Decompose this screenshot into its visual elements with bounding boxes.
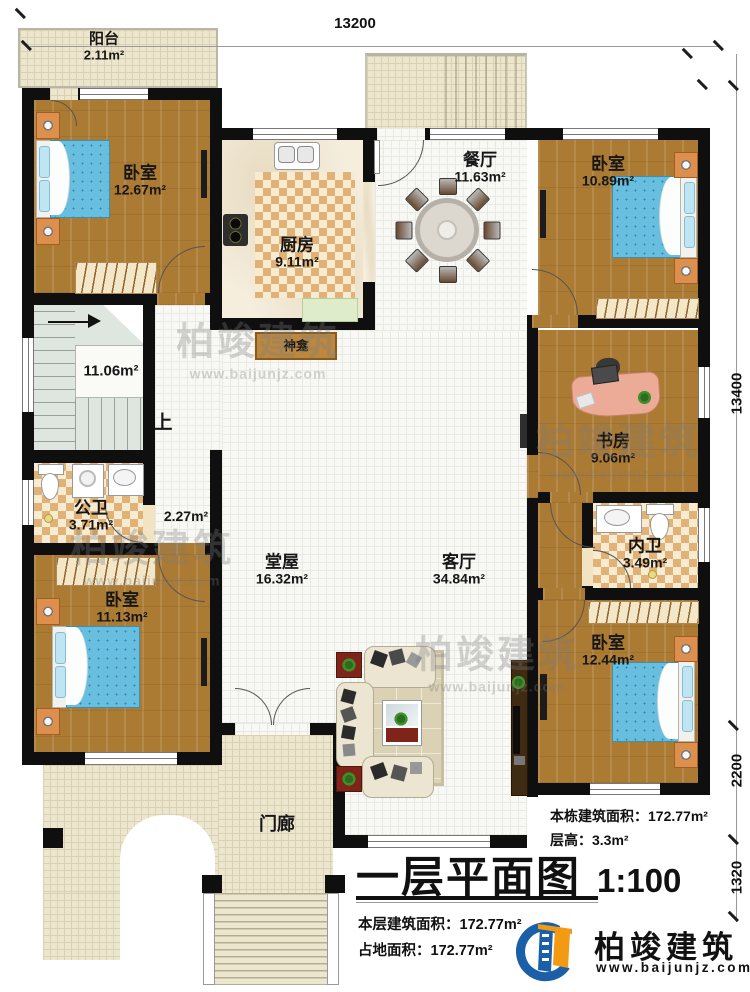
room-label-public-bath: 公卫 3.71m² xyxy=(69,499,113,534)
stair-direction-arrow xyxy=(88,314,101,328)
window xyxy=(22,480,34,525)
tv-symbol xyxy=(513,706,520,754)
steps-side-rail xyxy=(327,893,339,985)
window xyxy=(430,128,505,140)
shrine-label: 神龛 xyxy=(283,339,308,353)
door-opening xyxy=(157,293,205,305)
stair-direction-line xyxy=(48,321,90,323)
room-name: 厨房 xyxy=(275,236,319,255)
company-logo: 柏竣建筑 www.baijunjz.com xyxy=(506,918,744,986)
wardrobe xyxy=(75,262,157,294)
room-label-bedroom-nw: 卧室 12.67m² xyxy=(114,164,166,199)
dimension-tick xyxy=(697,79,708,90)
wall-segment xyxy=(527,318,538,797)
door-opening xyxy=(582,548,593,586)
dimension-label-right-upper: 13400 xyxy=(729,364,746,424)
room-label-study: 书房 9.06m² xyxy=(591,432,635,467)
door-opening xyxy=(532,315,578,328)
kitchen-opening xyxy=(363,182,375,282)
plant xyxy=(392,710,410,728)
room-label-porch: 门廊 xyxy=(259,814,295,834)
room-area: 12.44m² xyxy=(582,653,634,669)
wall-segment xyxy=(363,282,375,330)
wardrobe xyxy=(588,601,699,624)
dining-chair xyxy=(396,222,413,240)
nightstand xyxy=(674,742,698,768)
room-area: 11.13m² xyxy=(96,610,147,626)
nightstand xyxy=(36,112,60,139)
porch-column xyxy=(43,828,63,848)
window xyxy=(22,338,34,412)
logo-website: www.baijunjz.com xyxy=(596,960,750,975)
room-name: 门廊 xyxy=(259,814,295,834)
bed-sheet xyxy=(657,663,678,739)
tv-symbol xyxy=(540,674,547,720)
room-area: 9.11m² xyxy=(275,255,319,271)
drawing-scale: 1:100 xyxy=(597,862,681,900)
porch-arch-cutout xyxy=(120,815,215,960)
cabinet-item xyxy=(514,756,525,765)
wall-segment xyxy=(698,128,710,795)
stair-up-label: 上 xyxy=(153,412,172,433)
room-name: 神龛 xyxy=(283,339,308,353)
washer-door xyxy=(79,470,96,487)
room-name: 卧室 xyxy=(96,591,147,610)
wall-segment xyxy=(210,450,222,765)
dimension-tick xyxy=(728,720,739,731)
porch-floor xyxy=(43,893,120,960)
corridor-area-label: 2.27m² xyxy=(164,509,208,525)
room-name: 阳台 xyxy=(84,31,124,48)
room-label-living: 客厅 34.84m² xyxy=(433,553,485,588)
computer-monitor xyxy=(591,364,619,384)
room-area: 34.84m² xyxy=(433,572,485,588)
tv-symbol xyxy=(520,414,527,448)
room-label-kitchen: 厨房 9.11m² xyxy=(275,236,319,271)
window xyxy=(253,128,337,140)
bed-pillow xyxy=(39,180,50,212)
room-label-bedroom-se: 卧室 12.44m² xyxy=(582,634,634,669)
bed-pillow xyxy=(684,216,695,248)
room-name: 客厅 xyxy=(433,553,485,572)
land-area-stat: 占地面积：172.77m² xyxy=(358,939,493,960)
room-area: 3.49m² xyxy=(623,556,667,572)
window xyxy=(698,367,710,418)
entry-steps xyxy=(215,893,327,985)
bed-pillow xyxy=(55,632,66,664)
porch-column xyxy=(325,875,345,893)
room-name: 公卫 xyxy=(69,499,113,518)
wall-segment xyxy=(22,450,155,463)
room-name: 卧室 xyxy=(582,634,634,653)
door-opening xyxy=(543,588,585,600)
top-dimension-line xyxy=(30,46,720,47)
terrace-shade-stripes xyxy=(445,56,525,128)
stove xyxy=(223,214,248,246)
sofa-pillow xyxy=(410,762,422,774)
dimension-tick xyxy=(682,48,693,59)
room-area: 11.63m² xyxy=(454,170,505,186)
bed-pillow xyxy=(682,700,693,732)
dining-chair xyxy=(439,266,457,283)
tv-symbol xyxy=(201,638,207,686)
window xyxy=(80,88,148,100)
room-label-inner-bath: 内卫 3.49m² xyxy=(623,537,667,572)
window xyxy=(563,128,658,140)
door-opening xyxy=(527,455,538,498)
window xyxy=(590,783,660,795)
nightstand xyxy=(36,708,60,735)
room-label-balcony: 阳台 2.11m² xyxy=(84,31,124,62)
coffee-table-tray xyxy=(386,728,418,742)
dining-set xyxy=(395,178,499,282)
floor-area-stat: 本层建筑面积：172.77m² xyxy=(358,913,522,934)
title-underline xyxy=(356,896,598,900)
window xyxy=(85,752,177,765)
room-name: 卧室 xyxy=(114,164,166,183)
sink-basin xyxy=(113,469,136,486)
steps-side-rail xyxy=(203,893,215,985)
dimension-tick xyxy=(15,8,26,19)
bed-pillow xyxy=(682,666,693,698)
room-area: 2.11m² xyxy=(84,48,124,63)
room-name: 书房 xyxy=(591,432,635,451)
plant xyxy=(512,676,525,689)
room-area: 2.27m² xyxy=(164,509,208,525)
sink-basin xyxy=(278,146,295,163)
wardrobe xyxy=(596,298,699,319)
dimension-tick xyxy=(728,80,739,91)
up-text: 上 xyxy=(153,412,172,433)
bed-pillow xyxy=(684,182,695,214)
floor-drain xyxy=(44,514,53,523)
room-area: 12.67m² xyxy=(114,183,166,199)
title-underline-thin xyxy=(356,902,598,903)
kitchen-mat xyxy=(302,298,358,322)
room-name: 餐厅 xyxy=(454,151,505,170)
dimension-label-right-lower: 1320 xyxy=(729,848,746,908)
sofa-pillow xyxy=(342,743,355,756)
room-name: 卧室 xyxy=(582,155,634,174)
nightstand xyxy=(36,218,60,245)
side-table-plant xyxy=(336,766,362,792)
door-opening xyxy=(143,505,155,543)
sink-basin xyxy=(604,509,630,526)
bed-sheet xyxy=(659,177,680,255)
stair-flight-horizontal xyxy=(75,398,148,450)
tv-symbol xyxy=(201,150,207,198)
side-table-plant xyxy=(336,652,362,678)
door-opening xyxy=(377,128,425,140)
nightstand xyxy=(674,152,698,178)
room-label-dining: 餐厅 11.63m² xyxy=(454,151,505,186)
room-name: 堂屋 xyxy=(256,553,308,572)
sink-basin xyxy=(297,146,314,163)
room-label-hall: 堂屋 16.32m² xyxy=(256,553,308,588)
room-area: 9.06m² xyxy=(591,451,635,467)
dimension-label-right-middle: 2200 xyxy=(729,741,746,801)
room-area: 16.32m² xyxy=(256,572,308,588)
dining-table-center xyxy=(437,220,457,240)
nightstand xyxy=(674,258,698,284)
logo-mark-icon xyxy=(506,918,592,984)
room-area: 3.71m² xyxy=(69,518,113,534)
room-label-bedroom-sw: 卧室 11.13m² xyxy=(96,591,147,626)
door-opening xyxy=(158,543,205,555)
bed-pillow xyxy=(39,146,50,178)
room-area: 10.89m² xyxy=(582,174,634,190)
door-opening xyxy=(50,88,78,100)
nightstand xyxy=(674,636,698,662)
room-label-bedroom-ne: 卧室 10.89m² xyxy=(582,155,634,190)
stairwell-area-label: 11.06m² xyxy=(83,364,138,381)
bed-pillow xyxy=(55,666,66,698)
dimension-tick xyxy=(728,834,739,845)
plant xyxy=(637,390,652,405)
room-area: 11.06m² xyxy=(83,364,138,381)
dining-chair xyxy=(484,222,501,240)
dimension-label-top: 13200 xyxy=(310,15,400,32)
nightstand xyxy=(36,598,60,625)
tv-symbol xyxy=(540,190,546,238)
sofa-pillow xyxy=(341,725,356,740)
porch-column xyxy=(202,875,222,893)
room-name: 内卫 xyxy=(623,537,667,556)
building-total-area: 本栋建筑面积：172.77m² xyxy=(550,806,708,826)
wardrobe xyxy=(56,557,156,586)
wall-segment xyxy=(22,88,34,765)
window xyxy=(698,508,710,562)
floor-plan-canvas: 13200 13400 2200 1320 xyxy=(0,0,750,992)
